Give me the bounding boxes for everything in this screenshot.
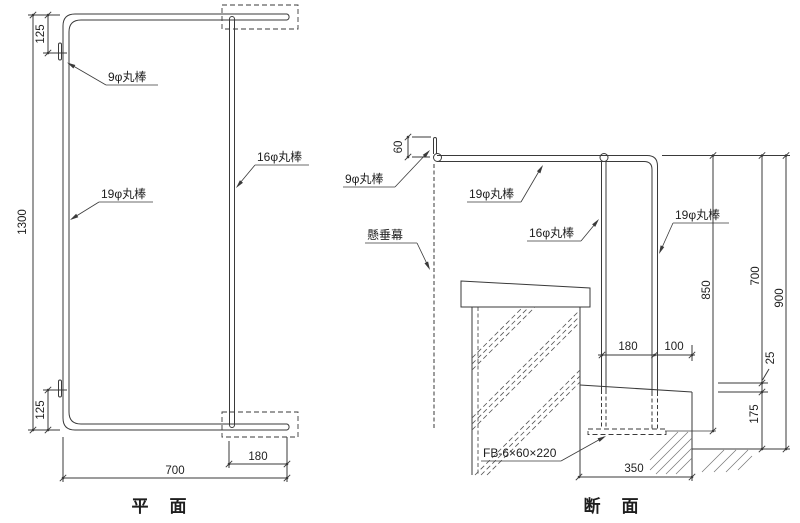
plan-rod9-hook-top [59, 43, 62, 60]
section-coping-cap [461, 281, 590, 307]
section-title: 断 面 [584, 496, 641, 516]
section-label-rod9: 9φ丸棒 [343, 149, 431, 187]
drawing-canvas: 1300 125 125 700 180 9φ丸棒 19φ丸棒 16φ丸棒 平 … [0, 0, 800, 523]
section-dim-clear-height: 700 [750, 266, 762, 285]
section-dim-slope-drop: 25 [765, 352, 777, 365]
section-rod9-hook [434, 138, 442, 162]
section-label-rod19-top: 19φ丸棒 [467, 164, 545, 202]
rod-end-cap-top [287, 14, 289, 20]
rod-end-cap-bottom [287, 424, 289, 430]
plan-rod9-text: 9φ丸棒 [108, 70, 146, 84]
plan-rod16-text: 16φ丸棒 [257, 150, 302, 164]
curb-hatch [650, 432, 692, 474]
section-rod9-text: 9φ丸棒 [345, 172, 383, 186]
plan-dimension-lines [33, 15, 287, 478]
section-banner-text: 懸垂幕 [367, 228, 403, 242]
plan-rod19-outline [63, 14, 289, 430]
section-dim-edge-offset: 100 [664, 341, 683, 353]
plan-label-rod16: 16φ丸棒 [234, 150, 309, 189]
plan-label-rod19: 19φ丸棒 [69, 187, 153, 222]
section-dim-rod-spacing: 180 [618, 341, 637, 353]
section-rod16-text: 16φ丸棒 [529, 226, 574, 240]
section-rod16 [600, 154, 608, 430]
plan-title: 平 面 [132, 497, 189, 516]
plan-rod19-text: 19φ丸棒 [101, 187, 146, 201]
plan-dim-top-offset: 125 [35, 24, 47, 43]
section-dim-curb-width: 350 [624, 463, 643, 475]
section-rod19-vert-text: 19φ丸棒 [675, 208, 720, 222]
slab-hatch [702, 450, 752, 472]
section-dim-curb-height: 175 [749, 404, 761, 423]
technical-drawing: 1300 125 125 700 180 9φ丸棒 19φ丸棒 16φ丸棒 平 … [0, 0, 800, 523]
section-flat-bar-text: FB-6×60×220 [483, 446, 557, 460]
plan-dim-end-extension: 180 [248, 451, 267, 463]
plan-view: 1300 125 125 700 180 9φ丸棒 19φ丸棒 16φ丸棒 平 … [17, 5, 309, 516]
section-label-flat-bar: FB-6×60×220 [481, 434, 607, 461]
section-dim-overall-height: 900 [774, 288, 786, 307]
section-view: 60 180 100 850 700 900 25 175 350 9φ丸棒 懸… [343, 134, 790, 516]
section-label-rod19-vert: 19φ丸棒 [657, 208, 729, 255]
plan-dim-width: 700 [165, 465, 184, 477]
section-dim-rod-bottom-height: 850 [701, 280, 713, 299]
plan-dim-bottom-offset: 125 [35, 400, 47, 419]
section-dim-hook-height: 60 [393, 141, 405, 154]
plan-dim-total-height: 1300 [17, 209, 29, 235]
section-label-rod16: 16φ丸棒 [527, 218, 601, 241]
section-slab-profile [580, 385, 790, 481]
section-label-banner: 懸垂幕 [365, 228, 432, 271]
plan-rod9-hook-bottom [59, 380, 62, 397]
section-rod19-top-text: 19φ丸棒 [469, 187, 514, 201]
flat-bar-hidden [588, 429, 666, 435]
plan-rod16-outline [230, 17, 235, 428]
plan-label-rod9: 9φ丸棒 [66, 61, 158, 85]
